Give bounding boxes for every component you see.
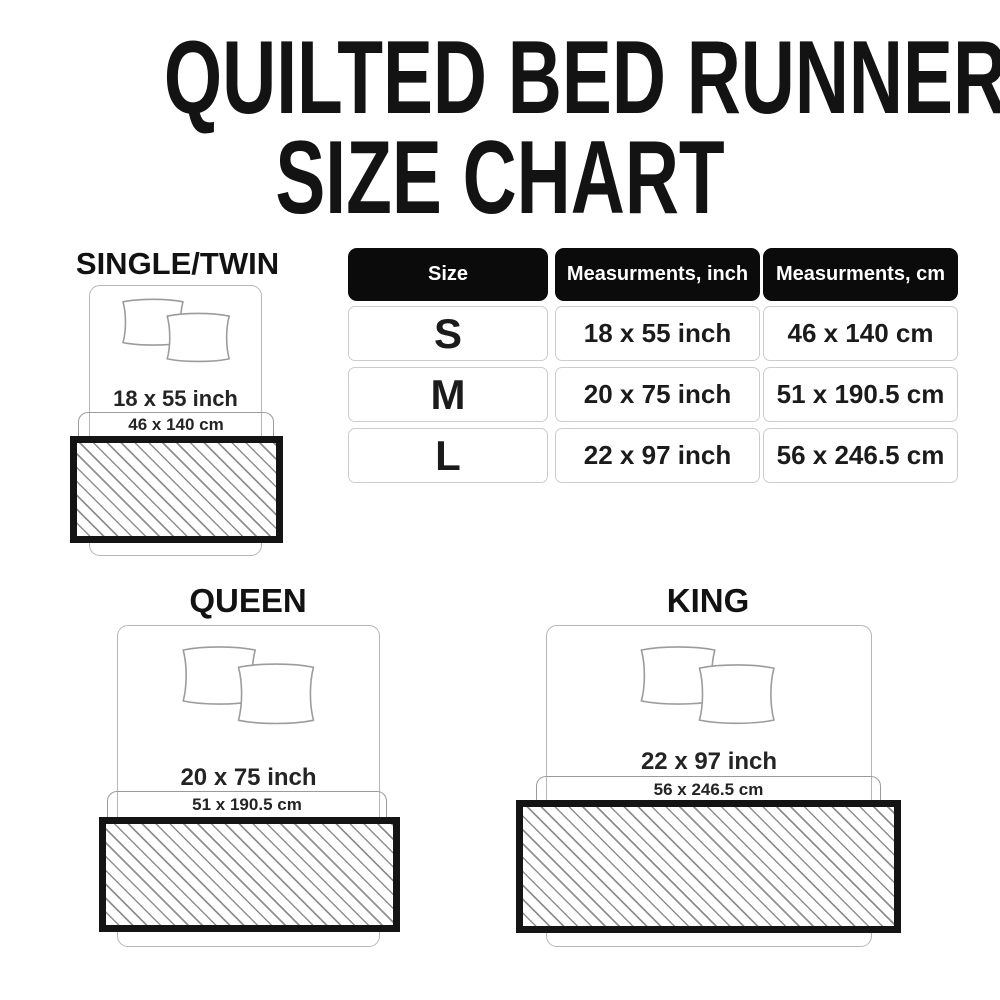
table-row: M 20 x 75 inch 51 x 190.5 cm (348, 367, 958, 422)
table-row: L 22 x 97 inch 56 x 246.5 cm (348, 428, 958, 483)
bed-runner-shape-king (516, 800, 901, 933)
cell-inch-l: 22 x 97 inch (555, 428, 760, 483)
table-header-row: Size Measurments, inch Measurments, cm (348, 248, 958, 301)
header-measurements-inch: Measurments, inch (555, 248, 760, 301)
pillow-icon (239, 664, 314, 723)
cell-inch-m: 20 x 75 inch (555, 367, 760, 422)
pillows-icon-queen (170, 639, 335, 734)
inch-dimension-label-king: 22 x 97 inch (546, 748, 872, 776)
pillow-icon (699, 665, 774, 723)
header-measurements-cm: Measurments, cm (763, 248, 958, 301)
pillow-icon (167, 313, 229, 361)
section-label-queen: QUEEN (128, 582, 368, 620)
size-table: Size Measurments, inch Measurments, cm S… (348, 248, 958, 489)
table-row: S 18 x 55 inch 46 x 140 cm (348, 306, 958, 361)
header-size: Size (348, 248, 548, 301)
cell-cm-s: 46 x 140 cm (763, 306, 958, 361)
section-label-king: KING (588, 582, 828, 620)
cm-dimension-label-queen: 51 x 190.5 cm (107, 795, 387, 815)
bed-runner-shape-single (70, 436, 283, 543)
bed-runner-shape-queen (99, 817, 400, 932)
cell-size-s: S (348, 306, 548, 361)
cm-dimension-label-single: 46 x 140 cm (78, 415, 274, 435)
section-label-single-twin: SINGLE/TWIN (60, 246, 295, 282)
cell-cm-l: 56 x 246.5 cm (763, 428, 958, 483)
pillows-icon-single (103, 290, 248, 375)
inch-dimension-label-single: 18 x 55 inch (89, 386, 262, 412)
inch-dimension-label-queen: 20 x 75 inch (117, 764, 380, 792)
cell-cm-m: 51 x 190.5 cm (763, 367, 958, 422)
page-title-line2: SIZE CHART (0, 128, 1000, 228)
cell-inch-s: 18 x 55 inch (555, 306, 760, 361)
cm-dimension-label-king: 56 x 246.5 cm (536, 780, 881, 800)
cell-size-l: L (348, 428, 548, 483)
page-title-line1-text: QUILTED BED RUNNER (164, 28, 1000, 128)
page-title-line1: QUILTED BED RUNNER (0, 28, 1000, 128)
size-chart-infographic: QUILTED BED RUNNER SIZE CHART Size Measu… (0, 0, 1000, 1000)
cell-size-m: M (348, 367, 548, 422)
page-title-line2-text: SIZE CHART (275, 128, 724, 228)
pillows-icon-king (628, 639, 793, 734)
